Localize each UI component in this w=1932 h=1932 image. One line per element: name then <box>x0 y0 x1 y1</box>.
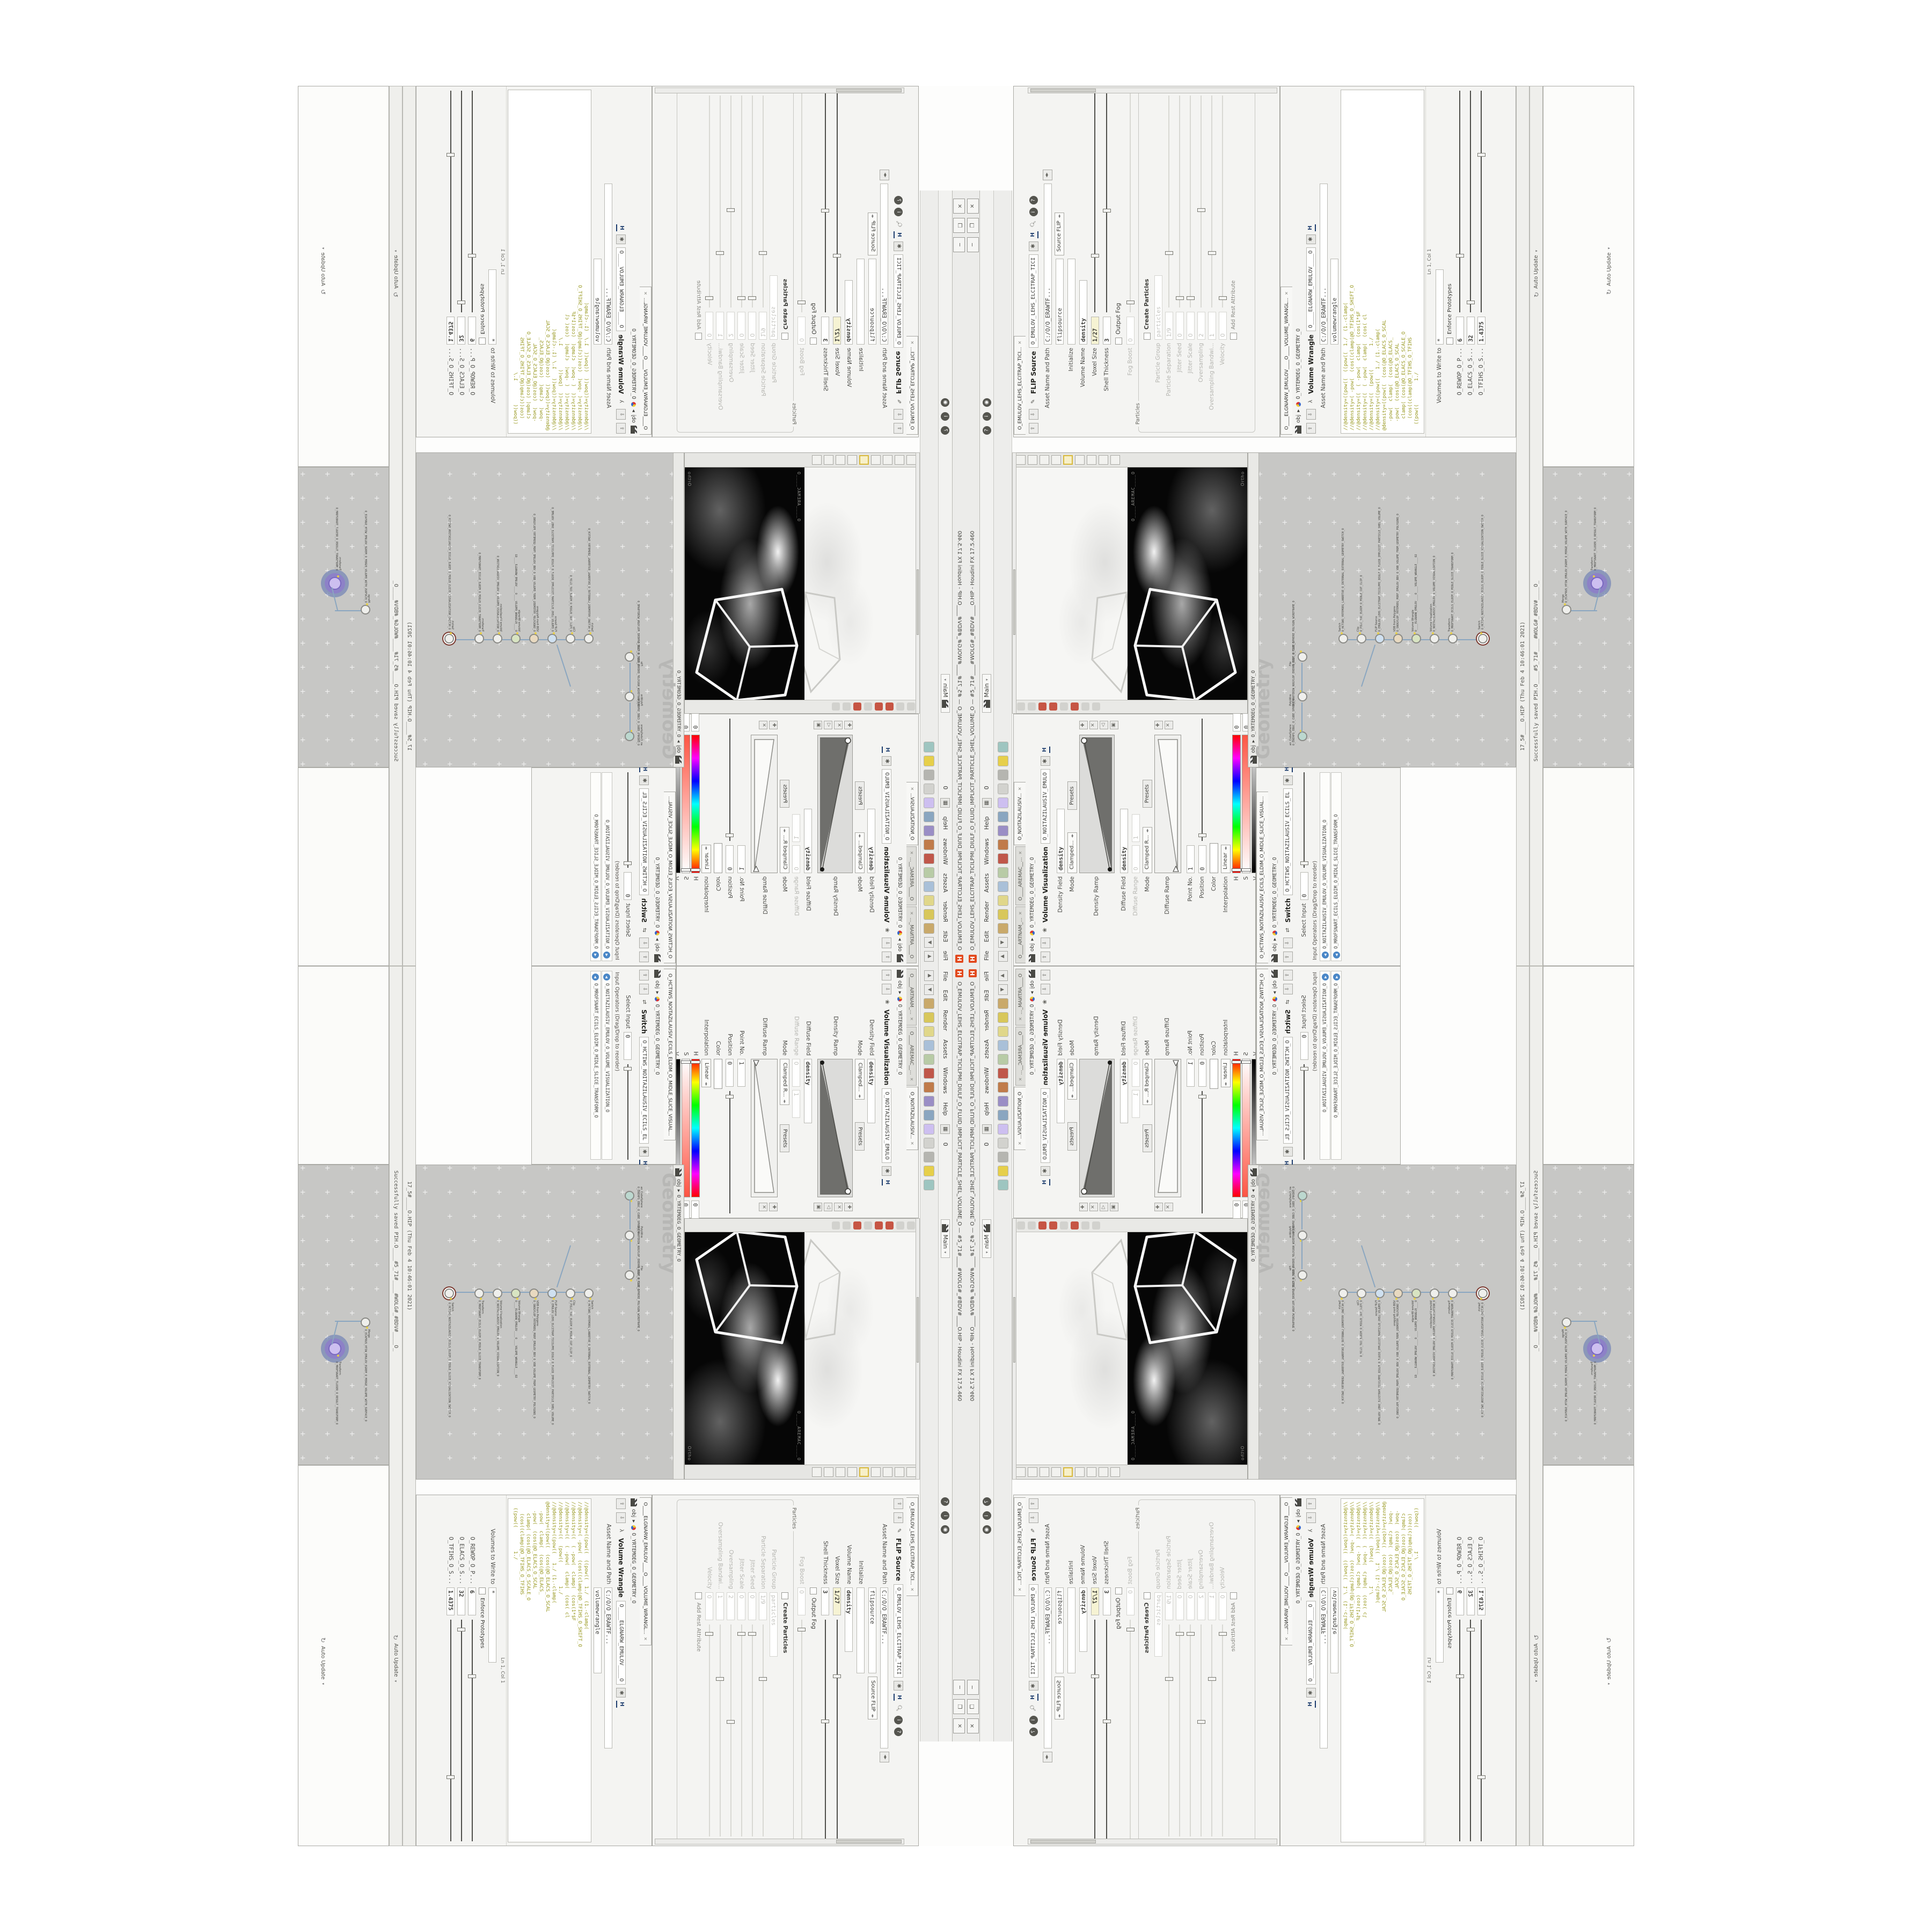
diffuse-ramp-widget[interactable] <box>1154 1059 1181 1197</box>
node-name-field[interactable]: O_HCTIWS_NOITAZILAUSIV_ECILS_EL <box>639 1037 649 1144</box>
delete-point-icon[interactable]: ✕ <box>1089 721 1098 729</box>
shelf-tool-icon[interactable] <box>924 770 935 780</box>
asset-path-field[interactable]: C:/O/O_ERAWTF... <box>881 1587 889 1748</box>
tab-flip-source[interactable]: O_EMULOV_LEHS_ELCITRAP_TICI...✕ <box>1014 336 1026 435</box>
shelf-tool-icon[interactable] <box>998 923 1008 934</box>
magnet-tool-icon[interactable] <box>1092 703 1100 711</box>
shelf-down-icon[interactable]: ▼ <box>925 937 934 948</box>
tab-mantra[interactable]: O____ARTNAM_...✕ <box>906 969 917 1026</box>
tab-mantra[interactable]: O____ARTNAM_...✕ <box>1015 906 1026 963</box>
param-slider[interactable] <box>748 94 757 309</box>
select-input-field[interactable]: 0 <box>624 872 632 900</box>
initialize-field[interactable] <box>1067 1587 1075 1673</box>
help-icon[interactable]: ? <box>894 196 903 204</box>
nav-up-icon[interactable]: ⇧ <box>1041 970 1050 980</box>
snap-tool-icon[interactable] <box>843 1221 851 1230</box>
shelf-tool-icon[interactable] <box>998 1180 1008 1190</box>
network-node-switch-ringed[interactable] <box>1478 634 1488 643</box>
question-icon[interactable]: ? <box>941 1497 950 1506</box>
nav-up-icon[interactable]: ⇧ <box>1306 423 1316 434</box>
mode-dropdown[interactable]: Clamped R... <box>1143 827 1152 873</box>
target-icon[interactable]: ◉ <box>983 1525 991 1534</box>
expand-icon[interactable]: ▣ <box>814 1203 822 1211</box>
volume-name-field[interactable]: density <box>1079 280 1087 345</box>
nav-down-icon[interactable]: ⇩ <box>1029 409 1038 420</box>
select-tool-icon[interactable] <box>1017 1221 1025 1230</box>
network-node[interactable] <box>584 1289 594 1298</box>
menu-edit[interactable]: Edit <box>983 931 990 942</box>
network-node[interactable] <box>1298 731 1307 741</box>
network-node[interactable] <box>1357 1289 1366 1298</box>
gear-icon[interactable]: ✱ <box>894 241 903 251</box>
close-button[interactable]: ✕ <box>953 1718 965 1733</box>
create-particles-checkbox[interactable] <box>782 333 789 340</box>
hue-bar[interactable] <box>691 735 700 873</box>
asset-path-field[interactable]: C:/O/O_ERAWTF... <box>605 184 613 345</box>
oversampling-bandwidth-field[interactable]: 1 <box>716 1592 724 1620</box>
tab-switch[interactable]: O_HCTIWS_NOITAZILAUSIV_ECILS_ELDIM_O_MID… <box>1256 792 1268 963</box>
expand-icon[interactable]: ▣ <box>1110 1203 1118 1211</box>
tab-camera[interactable]: O____AREMAC__...✕ <box>906 1027 917 1086</box>
select-input-field[interactable]: 0 <box>1300 1032 1308 1060</box>
shelf-tool-icon[interactable] <box>998 1026 1008 1037</box>
param-slider[interactable] <box>1477 90 1485 313</box>
tab-flip-source[interactable]: O_EMULOV_LEHS_ELCITRAP_TICI...✕ <box>1014 1497 1026 1596</box>
info-icon[interactable]: i <box>941 412 950 421</box>
source-type-dropdown[interactable]: Source FLIP <box>1055 1677 1064 1719</box>
close-icon[interactable]: ✕ <box>1284 291 1289 295</box>
marker-icon[interactable]: ◁ <box>1100 1203 1108 1211</box>
breadcrumb-path[interactable]: O_YRTEMOEG_O_GEOMETRY_O <box>1296 1533 1301 1604</box>
shelf-tool-icon[interactable] <box>998 742 1008 752</box>
node-name-field[interactable]: O_NOITAZILAUSIV_EMULO <box>882 769 891 843</box>
horizontal-scrollbar[interactable] <box>916 452 920 714</box>
input-operator-item[interactable]: ◀ O_NOITAZILAUSIV_EMULOV_O_VOLUME_VISUAL… <box>1320 772 1330 961</box>
diffuse-range-min-field[interactable]: 0 <box>793 845 801 873</box>
nav-up-icon[interactable]: ⇧ <box>616 1498 626 1509</box>
network-node-selected[interactable] <box>1591 577 1604 590</box>
particle-group-field[interactable]: particles <box>1154 275 1162 340</box>
param-slider[interactable] <box>737 1623 746 1838</box>
grid-toggle-icon[interactable] <box>1063 1467 1073 1477</box>
nav-up-icon[interactable]: ⇧ <box>639 952 649 962</box>
menu-help[interactable]: Help <box>942 1102 949 1116</box>
snapshot-icon[interactable] <box>1075 1467 1085 1477</box>
tab-flip-source[interactable]: O_EMULOV_LEHS_ELCITRAP_TICI...✕ <box>906 336 918 435</box>
nav-down-icon[interactable]: ⇩ <box>894 409 903 420</box>
output-fog-checkbox[interactable] <box>1115 338 1122 345</box>
shelf-tool-icon[interactable] <box>998 1124 1008 1135</box>
presets-button[interactable]: Presets <box>1067 781 1077 810</box>
handles-tool-icon[interactable] <box>864 1221 872 1230</box>
network-node[interactable] <box>361 605 370 614</box>
density-ramp-widget[interactable] <box>1079 735 1115 873</box>
menu-edit[interactable]: Edit <box>942 990 949 1001</box>
shelf-tool-icon[interactable] <box>998 853 1008 864</box>
breadcrumb-obj[interactable]: obj <box>897 943 903 952</box>
node-name-field[interactable]: O_NOITAZILAUSIV_EMULO <box>1041 769 1050 843</box>
close-button[interactable]: ✕ <box>967 1718 979 1733</box>
shelf-tool-icon[interactable] <box>998 770 1008 780</box>
layout-icon[interactable]: ▦ <box>941 1124 950 1134</box>
point-no-field[interactable]: 1 <box>738 845 746 873</box>
dimension-icon[interactable] <box>1110 455 1120 465</box>
shift-field[interactable]: 1.4375 <box>1477 317 1485 345</box>
network-node[interactable] <box>1298 652 1307 662</box>
menu-file[interactable]: File <box>942 951 949 961</box>
node-name-field[interactable]: O____ELGNARW_EMULOV____O <box>1306 1601 1316 1685</box>
shelf-tool-icon[interactable] <box>998 784 1008 794</box>
scale-field[interactable]: 32 <box>458 317 466 345</box>
nav-up-icon[interactable]: ⇧ <box>616 423 626 434</box>
breadcrumb-obj[interactable]: obj <box>631 415 637 423</box>
diffuse-range-min-field[interactable]: 0 <box>1132 845 1140 873</box>
dimension-icon[interactable] <box>812 1467 822 1477</box>
breadcrumb-obj[interactable]: obj <box>1029 980 1035 989</box>
scale-field[interactable]: 32 <box>1467 1587 1475 1615</box>
add-point-icon[interactable]: ✚ <box>1079 1203 1088 1211</box>
viewport-ortho-label[interactable]: Ortho <box>1240 471 1245 486</box>
close-icon[interactable]: ✕ <box>910 1587 914 1591</box>
add-rest-checkbox[interactable] <box>696 333 702 340</box>
particle-separation-field[interactable]: 1/9 <box>1165 312 1173 340</box>
close-button[interactable]: ✕ <box>967 199 979 214</box>
shelf-tool-icon[interactable] <box>924 881 935 892</box>
nav-down-icon[interactable]: ⇩ <box>1041 984 1050 994</box>
tab-visualization[interactable]: O_NOITAZILAUSIV...✕ <box>1014 1087 1026 1150</box>
voxel-size-field[interactable]: 1/27 <box>1091 317 1099 345</box>
position-slider[interactable] <box>726 718 734 842</box>
network-node[interactable] <box>1411 634 1421 643</box>
network-editor-bottom[interactable]: + + + + + + + + + + + + + + + + + + + + … <box>1543 467 1634 767</box>
question-icon[interactable]: ? <box>983 1497 991 1506</box>
param-slider[interactable] <box>1466 1619 1475 1842</box>
gear-icon[interactable]: ✱ <box>882 756 891 766</box>
network-node[interactable] <box>361 1318 370 1327</box>
shelf-tool-icon[interactable] <box>924 797 935 808</box>
add-point-icon[interactable]: ✚ <box>1079 721 1088 729</box>
presets-button[interactable]: Presets <box>780 780 789 808</box>
network-node[interactable] <box>566 1289 575 1298</box>
network-editor-geometry[interactable]: + + + + + + + + + + + + + + + + + + + + … <box>1248 1165 1516 1480</box>
voxel-size-slider[interactable] <box>1091 1619 1099 1842</box>
expand-icon[interactable]: ▣ <box>814 721 822 729</box>
color-swatch[interactable] <box>1210 843 1218 873</box>
scale-tool-icon[interactable] <box>1049 703 1057 711</box>
shelf-up-icon[interactable]: ▲ <box>925 970 934 981</box>
shell-thickness-field[interactable]: 3 <box>822 1587 830 1615</box>
scene-viewport[interactable]: O____AREMAC____O Ortho <box>684 452 919 714</box>
param-slider[interactable] <box>1175 1623 1184 1838</box>
diffuse-field-input[interactable]: density <box>804 1059 813 1123</box>
tab-volume-wrangle[interactable]: O____ELGNARW_EMULOV____O____VOLUME_WRANG… <box>1280 287 1292 435</box>
nav-up-icon[interactable]: ⇧ <box>882 952 891 962</box>
shelf-tool-icon[interactable] <box>924 1026 935 1037</box>
mode-dropdown[interactable]: Clamped... <box>1067 1059 1077 1100</box>
node-name-field[interactable]: O_EMULOV_LEHS_ELCITRAP_TICI <box>894 1584 903 1678</box>
magnify-icon[interactable]: 🔍︎ <box>1029 219 1038 228</box>
pose-tool-icon[interactable] <box>1071 1221 1079 1230</box>
shelf-tool-icon[interactable] <box>998 998 1008 1009</box>
auto-update-widget[interactable]: ↻ Auto Update ▾ <box>1605 1637 1613 1685</box>
nav-up-icon[interactable]: ⇧ <box>1041 952 1050 962</box>
power-field[interactable]: 6 <box>1456 1587 1464 1615</box>
magnify-icon[interactable]: 🔍︎ <box>1029 1704 1038 1713</box>
param-slider[interactable] <box>447 1619 455 1842</box>
node-name-field[interactable]: O____ELGNARW_EMULOV____O <box>1306 247 1316 332</box>
scale-field[interactable]: 32 <box>458 1587 466 1615</box>
horizontal-scrollbar[interactable] <box>1012 1218 1016 1480</box>
voxel-size-field[interactable]: 1/27 <box>833 317 841 345</box>
scale-tool-icon[interactable] <box>1049 1221 1057 1230</box>
menu-help[interactable]: Help <box>983 1102 990 1116</box>
network-node-switch-ringed[interactable] <box>1478 1289 1488 1298</box>
shell-thickness-field[interactable]: 3 <box>1103 317 1111 345</box>
camera-lock-icon[interactable] <box>1051 455 1061 465</box>
network-node[interactable] <box>1430 1289 1439 1298</box>
camera-lock-icon[interactable] <box>1051 1467 1061 1477</box>
interpolation-dropdown[interactable]: Linear <box>1221 845 1231 873</box>
add-point-icon[interactable]: ✚ <box>769 721 778 729</box>
shelf-tool-icon[interactable] <box>998 1082 1008 1093</box>
mode-dropdown[interactable]: Clamped R... <box>780 827 789 873</box>
output-fog-checkbox[interactable] <box>810 338 817 345</box>
nav-down-icon[interactable]: ⇩ <box>894 1512 903 1523</box>
source-type-dropdown[interactable]: Source FLIP <box>868 213 877 255</box>
create-particles-checkbox[interactable] <box>1144 1592 1151 1599</box>
param-slider[interactable] <box>759 1623 767 1838</box>
menu-edit[interactable]: Edit <box>983 990 990 1001</box>
nav-up-icon[interactable]: ⇧ <box>1029 1498 1038 1509</box>
volumes-to-write-field[interactable]: * <box>1436 1587 1444 1663</box>
network-node[interactable] <box>547 634 557 643</box>
move-tool-icon[interactable] <box>1028 1221 1036 1230</box>
network-node[interactable] <box>1298 1270 1307 1280</box>
network-node[interactable] <box>625 1270 634 1280</box>
shelf-tool-icon[interactable] <box>924 1054 935 1065</box>
snapshot-icon[interactable] <box>1075 455 1085 465</box>
asset-path-field[interactable]: C:/O/O_ERAWTF... <box>1044 1587 1052 1748</box>
menu-render[interactable]: Render <box>942 901 949 922</box>
viewport-camera-label[interactable]: O____AREMAC____O <box>1131 1411 1136 1461</box>
close-icon[interactable]: ✕ <box>1018 1017 1023 1021</box>
shift-field[interactable]: 1.4375 <box>1477 1587 1485 1615</box>
breadcrumb-path[interactable]: O_YRTEMOEG_O_GEOMETRY_O <box>655 1004 661 1075</box>
shelf-tool-icon[interactable] <box>924 1110 935 1121</box>
pose-tool-icon[interactable] <box>853 1221 861 1230</box>
breadcrumb-obj[interactable]: obj <box>1296 1509 1301 1517</box>
auto-update-widget[interactable]: ↻ Auto Update ▾ <box>1605 247 1613 295</box>
add-rest-checkbox[interactable] <box>1230 1592 1237 1599</box>
select-tool-icon[interactable] <box>907 1221 915 1230</box>
shelf-up-icon[interactable]: ▲ <box>925 951 934 962</box>
shelf-tool-icon[interactable] <box>998 1054 1008 1065</box>
add-point-icon[interactable]: ✚ <box>844 721 853 729</box>
marker-icon[interactable]: ◁ <box>824 1203 832 1211</box>
breadcrumb-path[interactable]: O_YRTEMOEG_O_GEOMETRY_O <box>1029 857 1035 928</box>
shell-thickness-slider[interactable] <box>1102 90 1111 313</box>
view-mode-icon[interactable] <box>1016 1467 1026 1477</box>
scale-tool-icon[interactable] <box>875 1221 883 1230</box>
param-slider[interactable] <box>1455 90 1464 313</box>
network-node[interactable] <box>511 1289 521 1298</box>
shelf-tool-icon[interactable] <box>924 1124 935 1135</box>
desktop-selector[interactable]: Main ▾ <box>982 1219 991 1258</box>
vertical-scrollbar[interactable] <box>655 1839 904 1845</box>
shelf-tool-icon[interactable] <box>924 742 935 752</box>
gear-icon[interactable]: ✱ <box>616 1688 626 1697</box>
velocity-field[interactable]: 0 <box>1219 312 1227 340</box>
breadcrumb-path[interactable]: O_YRTEMOEG_O_GEOMETRY_O <box>897 1004 903 1075</box>
source-type-dropdown[interactable]: Source FLIP <box>1055 213 1064 255</box>
volume-name-field[interactable]: density <box>845 1587 853 1652</box>
nav-down-icon[interactable]: ⇩ <box>1306 1512 1316 1523</box>
handles-tool-icon[interactable] <box>864 703 872 711</box>
initialize-field[interactable] <box>857 259 865 345</box>
rotate-tool-icon[interactable] <box>885 1221 894 1230</box>
network-node[interactable] <box>547 1289 557 1298</box>
scene-viewport[interactable]: O____AREMAC____O Ortho <box>1013 1218 1248 1480</box>
network-node[interactable] <box>1393 1289 1403 1298</box>
diffuse-range-max-field[interactable]: 1 <box>1132 814 1140 842</box>
point-no-field[interactable]: 1 <box>1187 1059 1195 1087</box>
node-name-field[interactable]: O_EMULOV_LEHS_ELCITRAP_TICI <box>1029 254 1038 348</box>
nav-down-icon[interactable]: ⇩ <box>1041 938 1050 948</box>
diffuse-field-input[interactable]: density <box>1120 1059 1128 1123</box>
lookdev-icon[interactable] <box>1087 455 1096 465</box>
view-mode-icon[interactable] <box>906 1467 916 1477</box>
light-toggle-icon[interactable] <box>824 455 833 465</box>
close-icon[interactable]: ✕ <box>909 851 914 855</box>
breadcrumb-path[interactable]: O_YRTEMOEG_O_GEOMETRY_O <box>1272 1004 1278 1075</box>
close-icon[interactable]: ✕ <box>910 1141 914 1145</box>
delete-point-icon[interactable]: ✕ <box>1089 1203 1098 1211</box>
shelf-tool-icon[interactable] <box>998 867 1008 878</box>
mode-dropdown[interactable]: Clamped R... <box>1143 1059 1152 1105</box>
scene-viewport[interactable]: O____AREMAC____O Ortho <box>1013 452 1248 714</box>
input-operator-item[interactable]: ◀ O_NOITAZILAUSIV_EMULOV_O_VOLUME_VISUAL… <box>602 772 612 961</box>
light-toggle-icon[interactable] <box>824 1467 833 1477</box>
viewport-ortho-label[interactable]: Ortho <box>687 471 692 486</box>
close-icon[interactable]: ✕ <box>909 1017 914 1021</box>
grid-toggle-icon[interactable] <box>1063 455 1073 465</box>
input-operator-item[interactable]: ◀ O_MROFSNART_ECILS_ELDIM_O_MIDLE_SLICE_… <box>1331 971 1342 1160</box>
tab-volume-wrangle[interactable]: O____ELGNARW_EMULOV____O____VOLUME_WRANG… <box>640 287 652 435</box>
shelf-up-icon[interactable]: ▲ <box>998 970 1008 981</box>
pager-icon[interactable]: ◂▸ <box>880 1752 889 1762</box>
shell-thickness-field[interactable]: 3 <box>822 317 830 345</box>
input-operator-item[interactable]: ◀ O_NOITAZILAUSIV_EMULOV_O_VOLUME_VISUAL… <box>602 971 612 1160</box>
pager-icon[interactable]: ◂▸ <box>1043 170 1052 180</box>
minimize-button[interactable]: ─ <box>953 237 965 252</box>
scale-tool-icon[interactable] <box>875 703 883 711</box>
output-fog-checkbox[interactable] <box>810 1587 817 1594</box>
vex-code-editor[interactable]: //@density=((pow(( ((pow(( 1./ (1.-clamp… <box>508 90 591 434</box>
jitter-seed-field[interactable]: 0 <box>1176 312 1184 340</box>
snapshot-icon[interactable] <box>847 455 857 465</box>
fog-boost-field[interactable]: 0 <box>1126 1587 1135 1615</box>
position-field[interactable]: 0 <box>726 1059 734 1087</box>
horizontal-scrollbar[interactable] <box>916 1218 920 1480</box>
node-name-field[interactable]: O_HCTIWS_NOITAZILAUSIV_ECILS_EL <box>1283 1037 1293 1144</box>
magnify-icon[interactable]: 🔍︎ <box>894 219 903 228</box>
wireframe-mode-icon[interactable] <box>1040 1467 1049 1477</box>
restore-button[interactable]: ❐ <box>967 1699 979 1714</box>
particle-group-field[interactable]: particles <box>770 275 778 340</box>
node-name-field[interactable]: O_NOITAZILAUSIV_EMULO <box>1041 1088 1050 1162</box>
interpolation-dropdown[interactable]: Linear <box>701 1059 711 1087</box>
breadcrumb-path[interactable]: O_YRTEMOEG_O_GEOMETRY_O <box>1296 328 1301 399</box>
presets-button[interactable]: Presets <box>780 1124 789 1153</box>
network-node[interactable] <box>1393 634 1403 643</box>
shelf-tool-icon[interactable] <box>998 811 1008 822</box>
layout-icon[interactable]: ▦ <box>982 798 992 808</box>
output-fog-checkbox[interactable] <box>1115 1587 1122 1594</box>
hue-bar[interactable] <box>691 1059 700 1197</box>
close-icon[interactable]: ✕ <box>909 911 914 915</box>
fog-boost-field[interactable]: 0 <box>1126 317 1135 345</box>
wrangle-node-name-field[interactable]: volumewrangle <box>594 1587 602 1673</box>
marker-icon[interactable]: ◁ <box>1100 721 1108 729</box>
nav-up-icon[interactable]: ⇧ <box>1283 970 1293 980</box>
velocity-field[interactable]: 0 <box>706 1592 714 1620</box>
menu-windows[interactable]: Windows <box>983 1067 990 1094</box>
point-no-field[interactable]: 1 <box>1187 845 1195 873</box>
fog-boost-slider[interactable] <box>797 90 806 313</box>
wireframe-mode-icon[interactable] <box>883 1467 892 1477</box>
tab-switch[interactable]: O_HCTIWS_NOITAZILAUSIV_ECILS_ELDIM_O_MID… <box>1256 969 1268 1140</box>
shelf-down-icon[interactable]: ▼ <box>998 984 1008 995</box>
network-editor-geometry[interactable]: + + + + + + + + + + + + + + + + + + + + … <box>416 1165 684 1480</box>
diffuse-ramp-widget[interactable] <box>1154 735 1181 873</box>
tab-volume-wrangle[interactable]: O____ELGNARW_EMULOV____O____VOLUME_WRANG… <box>1280 1497 1292 1645</box>
param-slider[interactable] <box>705 94 714 309</box>
shelf-tool-icon[interactable] <box>924 1096 935 1107</box>
close-icon[interactable]: ✕ <box>1284 1637 1289 1641</box>
particle-group-field[interactable]: particles <box>1154 1592 1162 1657</box>
nav-down-icon[interactable]: ⇩ <box>639 984 649 994</box>
voxel-size-slider[interactable] <box>833 1619 841 1842</box>
network-node[interactable] <box>511 634 521 643</box>
menu-help[interactable]: Help <box>942 816 949 830</box>
volumes-to-write-field[interactable]: * <box>1436 269 1444 345</box>
menu-assets[interactable]: Assets <box>983 1040 990 1059</box>
oversampling-bandwidth-field[interactable]: 1 <box>1208 1592 1216 1620</box>
close-icon[interactable]: ✕ <box>1018 1141 1022 1145</box>
tab-camera[interactable]: O____AREMAC__...✕ <box>906 846 917 906</box>
marker-icon[interactable]: ◁ <box>824 721 832 729</box>
shelf-tool-icon[interactable] <box>924 839 935 850</box>
param-slider[interactable] <box>1165 1623 1173 1838</box>
jitter-seed-field[interactable]: 0 <box>749 312 757 340</box>
param-slider[interactable] <box>716 1623 724 1838</box>
lookdev-icon[interactable] <box>1087 1467 1096 1477</box>
nav-down-icon[interactable]: ⇩ <box>639 938 649 948</box>
close-icon[interactable]: ✕ <box>1018 851 1023 855</box>
pager-icon[interactable]: ◂▸ <box>1043 1752 1052 1762</box>
shelf-tool-icon[interactable] <box>998 1012 1008 1023</box>
shade-mode-icon[interactable] <box>1028 455 1037 465</box>
velocity-field[interactable]: 0 <box>1219 1592 1227 1620</box>
flip-node-name-field[interactable]: flipsource <box>869 1587 877 1673</box>
tab-switch[interactable]: O_HCTIWS_NOITAZILAUSIV_ECILS_ELDIM_O_MID… <box>664 969 676 1140</box>
restore-button[interactable]: ❐ <box>953 218 965 233</box>
param-slider[interactable] <box>468 90 477 313</box>
param-slider[interactable] <box>1218 94 1227 309</box>
shelf-tool-icon[interactable] <box>924 825 935 836</box>
network-node[interactable] <box>1448 634 1458 643</box>
auto-update-widget[interactable]: ↻ Auto Update ▾ <box>319 1637 327 1685</box>
